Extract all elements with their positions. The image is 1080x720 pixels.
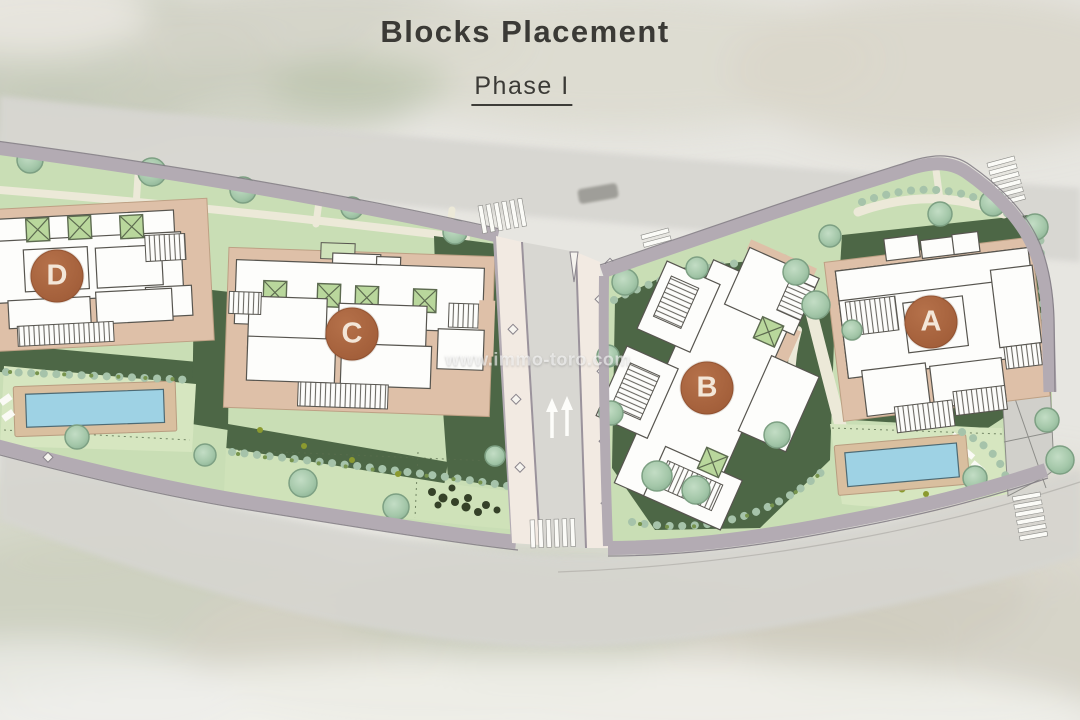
site-plan-image: Blocks Placement Phase I www.immo-toro.c… xyxy=(0,0,1080,720)
pool-left xyxy=(13,381,177,437)
block-badge-d: D xyxy=(31,250,84,303)
central-road xyxy=(496,236,615,548)
pool-left-water xyxy=(25,389,164,427)
phase-label: Phase I xyxy=(471,72,572,106)
watermark: www.immo-toro.com xyxy=(445,350,631,371)
block-badge-c: C xyxy=(326,308,379,361)
block-badge-b: B xyxy=(681,362,734,415)
page-title: Blocks Placement xyxy=(380,14,669,50)
block-badge-a: A xyxy=(905,296,958,349)
